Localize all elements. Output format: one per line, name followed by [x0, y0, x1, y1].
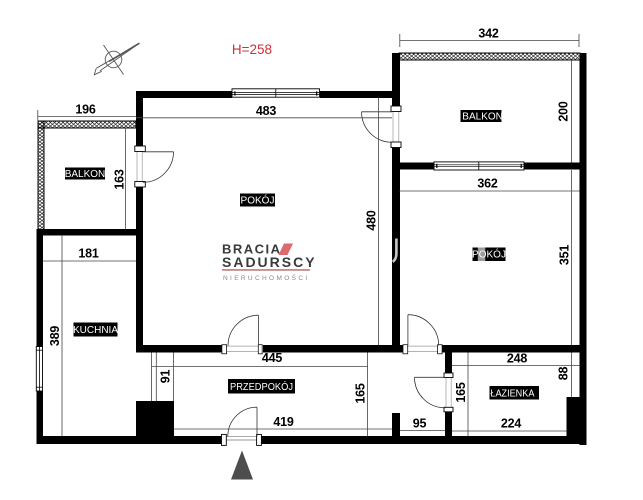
svg-text:BALKON: BALKON [65, 169, 106, 180]
svg-text:248: 248 [507, 352, 528, 366]
svg-text:PRZEDPOKÓJ: PRZEDPOKÓJ [230, 380, 293, 393]
svg-text:BALKON: BALKON [462, 112, 503, 123]
svg-text:POKÓJ: POKÓJ [472, 248, 506, 261]
svg-text:POKÓJ: POKÓJ [241, 194, 275, 207]
svg-text:351: 351 [557, 245, 571, 266]
svg-text:362: 362 [477, 177, 498, 191]
svg-text:95: 95 [413, 417, 427, 431]
svg-text:91: 91 [158, 370, 172, 384]
svg-text:389: 389 [48, 326, 62, 347]
svg-text:224: 224 [501, 417, 522, 431]
svg-text:KUCHNIA: KUCHNIA [73, 325, 118, 336]
svg-text:H=258: H=258 [232, 42, 272, 57]
svg-text:342: 342 [478, 27, 499, 41]
svg-text:88: 88 [556, 367, 570, 381]
svg-text:165: 165 [353, 383, 367, 404]
svg-text:163: 163 [112, 169, 126, 190]
svg-text:SADURSCY: SADURSCY [222, 254, 317, 270]
svg-text:200: 200 [556, 101, 570, 122]
svg-text:480: 480 [364, 210, 378, 231]
svg-text:445: 445 [262, 351, 283, 365]
svg-text:NIERUCHOMOŚCI: NIERUCHOMOŚCI [223, 273, 310, 282]
svg-text:419: 419 [273, 415, 294, 429]
svg-text:ŁAZIENKA: ŁAZIENKA [490, 388, 534, 399]
svg-text:483: 483 [256, 104, 277, 118]
svg-text:196: 196 [75, 103, 96, 117]
svg-text:181: 181 [78, 247, 99, 261]
svg-text:165: 165 [454, 382, 468, 403]
